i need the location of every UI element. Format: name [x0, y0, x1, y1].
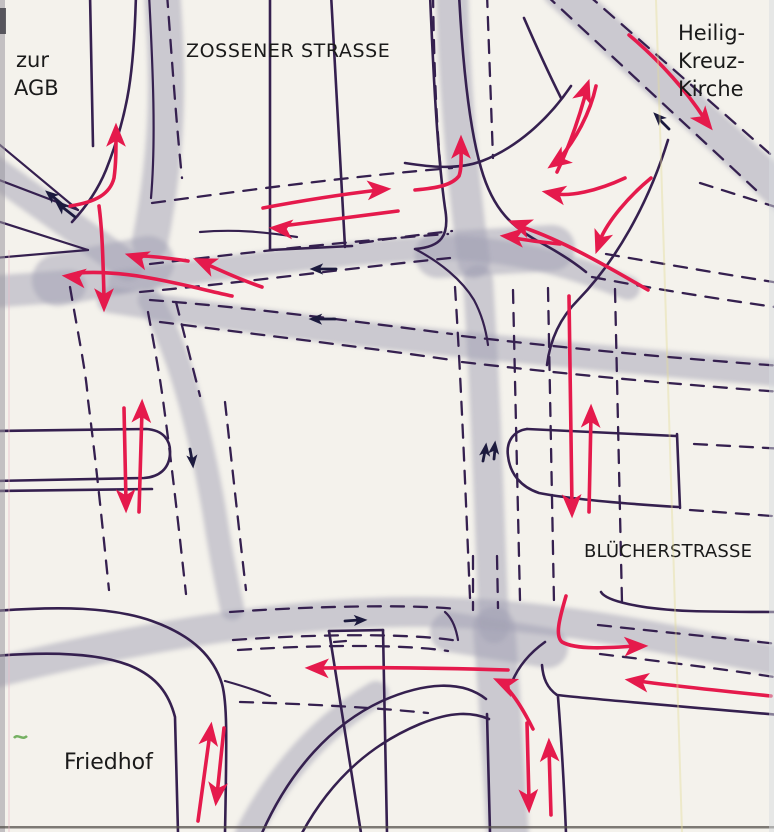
label-zur-agb-line1: zur [16, 48, 49, 72]
scan-corner-blip [0, 8, 6, 34]
green-pencil-mark [14, 736, 27, 738]
red-flow-arrow-east [263, 179, 392, 208]
red-flow-arrow-north [581, 403, 601, 512]
traffic-sketch-svg: zur AGB ZOSSENER STRASSE Heilig- Kreuz- … [0, 0, 774, 832]
red-flow-arrow-south [562, 296, 582, 519]
red-flow-arrow-west [540, 178, 625, 205]
label-friedhof: Friedhof [64, 750, 154, 775]
scan-left-edge [0, 0, 5, 832]
scanned-traffic-sketch: zur AGB ZOSSENER STRASSE Heilig- Kreuz- … [0, 0, 774, 832]
label-zur-agb-line2: AGB [14, 76, 59, 100]
label-heilig-line1: Heilig- [678, 21, 745, 45]
red-flow-arrow-west [268, 211, 398, 239]
red-flow-arrow-northeast [557, 76, 599, 172]
scan-yellow-streak [656, 0, 682, 832]
red-flow-arrow-north [539, 737, 560, 815]
red-flow-arrow-south [116, 408, 136, 514]
label-zossener-strasse: ZOSSENER STRASSE [186, 40, 390, 62]
red-flow-arrow-north [70, 123, 126, 206]
scan-right-edge [769, 0, 774, 832]
label-bluecherstrasse: BLÜCHERSTRASSE [584, 540, 752, 562]
red-flow-arrow-north [131, 398, 152, 512]
scan-bottom-line [0, 826, 774, 829]
label-heilig-line3: Kirche [678, 77, 744, 101]
label-heilig-line2: Kreuz- [678, 49, 745, 73]
